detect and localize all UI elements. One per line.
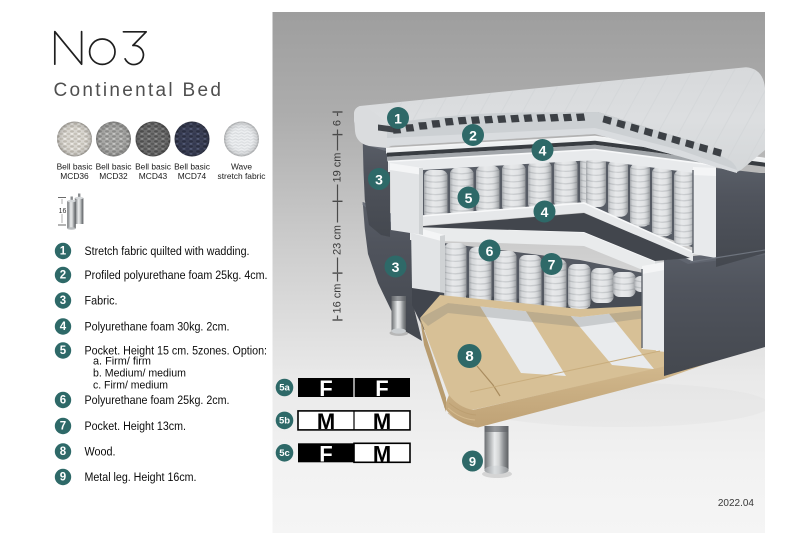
svg-text:1: 1 (394, 111, 402, 127)
svg-text:Bell basic: Bell basic (57, 162, 93, 172)
svg-text:M: M (317, 409, 335, 434)
svg-text:7: 7 (60, 421, 66, 433)
svg-text:16: 16 (59, 208, 67, 215)
svg-text:4: 4 (541, 204, 549, 220)
svg-text:9: 9 (60, 472, 66, 484)
svg-text:Bell basic: Bell basic (96, 162, 132, 172)
svg-text:F: F (319, 376, 332, 401)
svg-text:23 cm: 23 cm (332, 225, 344, 255)
svg-text:1: 1 (60, 246, 67, 258)
svg-text:5b: 5b (279, 415, 290, 426)
svg-text:5: 5 (465, 190, 473, 206)
svg-text:MCD74: MCD74 (178, 171, 207, 181)
svg-text:a. Firm/ firm: a. Firm/ firm (93, 355, 151, 367)
svg-text:8: 8 (465, 348, 473, 365)
svg-text:MCD32: MCD32 (99, 171, 128, 181)
svg-text:7: 7 (548, 257, 556, 273)
svg-text:Bell basic: Bell basic (174, 162, 210, 172)
svg-text:6: 6 (60, 395, 66, 407)
svg-text:Polyurethane foam 25kg. 2cm.: Polyurethane foam 25kg. 2cm. (85, 393, 230, 407)
svg-text:19 cm: 19 cm (332, 153, 344, 183)
svg-text:9: 9 (469, 454, 476, 469)
svg-text:5c: 5c (279, 448, 290, 459)
svg-text:2: 2 (60, 270, 66, 282)
svg-text:Pocket. Height 13cm.: Pocket. Height 13cm. (85, 419, 187, 433)
svg-text:M: M (373, 409, 391, 434)
svg-text:Wave: Wave (231, 162, 252, 172)
svg-text:M: M (373, 441, 391, 466)
svg-text:stretch fabric: stretch fabric (218, 171, 266, 181)
svg-text:4: 4 (539, 143, 547, 159)
svg-text:MCD43: MCD43 (139, 171, 168, 181)
svg-text:Wood.: Wood. (85, 445, 116, 459)
svg-text:Bell basic: Bell basic (135, 162, 171, 172)
svg-text:Stretch fabric quilted with wa: Stretch fabric quilted with wadding. (85, 244, 250, 258)
svg-text:4: 4 (60, 321, 67, 333)
svg-text:Profiled polyurethane foam 25k: Profiled polyurethane foam 25kg. 4cm. (85, 268, 268, 282)
svg-text:Continental Bed: Continental Bed (54, 80, 224, 101)
svg-text:5a: 5a (279, 383, 290, 394)
svg-text:6: 6 (486, 243, 494, 259)
svg-text:2: 2 (469, 128, 477, 144)
svg-text:b. Medium/ medium: b. Medium/ medium (93, 367, 186, 379)
svg-text:F: F (319, 441, 332, 466)
svg-text:3: 3 (392, 259, 400, 275)
svg-text:3: 3 (60, 295, 66, 307)
svg-text:Polyurethane foam 30kg. 2cm.: Polyurethane foam 30kg. 2cm. (85, 320, 230, 334)
svg-text:Fabric.: Fabric. (85, 294, 118, 308)
svg-text:2022.04: 2022.04 (718, 498, 755, 509)
svg-text:MCD36: MCD36 (60, 171, 89, 181)
svg-text:Metal leg. Height 16cm.: Metal leg. Height 16cm. (85, 470, 197, 484)
svg-text:c. Firm/ medium: c. Firm/ medium (93, 380, 168, 392)
svg-text:5: 5 (60, 345, 67, 357)
svg-text:3: 3 (375, 172, 383, 188)
svg-text:F: F (375, 376, 388, 401)
svg-text:16 cm: 16 cm (332, 284, 344, 314)
svg-text:8: 8 (60, 446, 67, 458)
svg-text:6: 6 (332, 120, 344, 126)
